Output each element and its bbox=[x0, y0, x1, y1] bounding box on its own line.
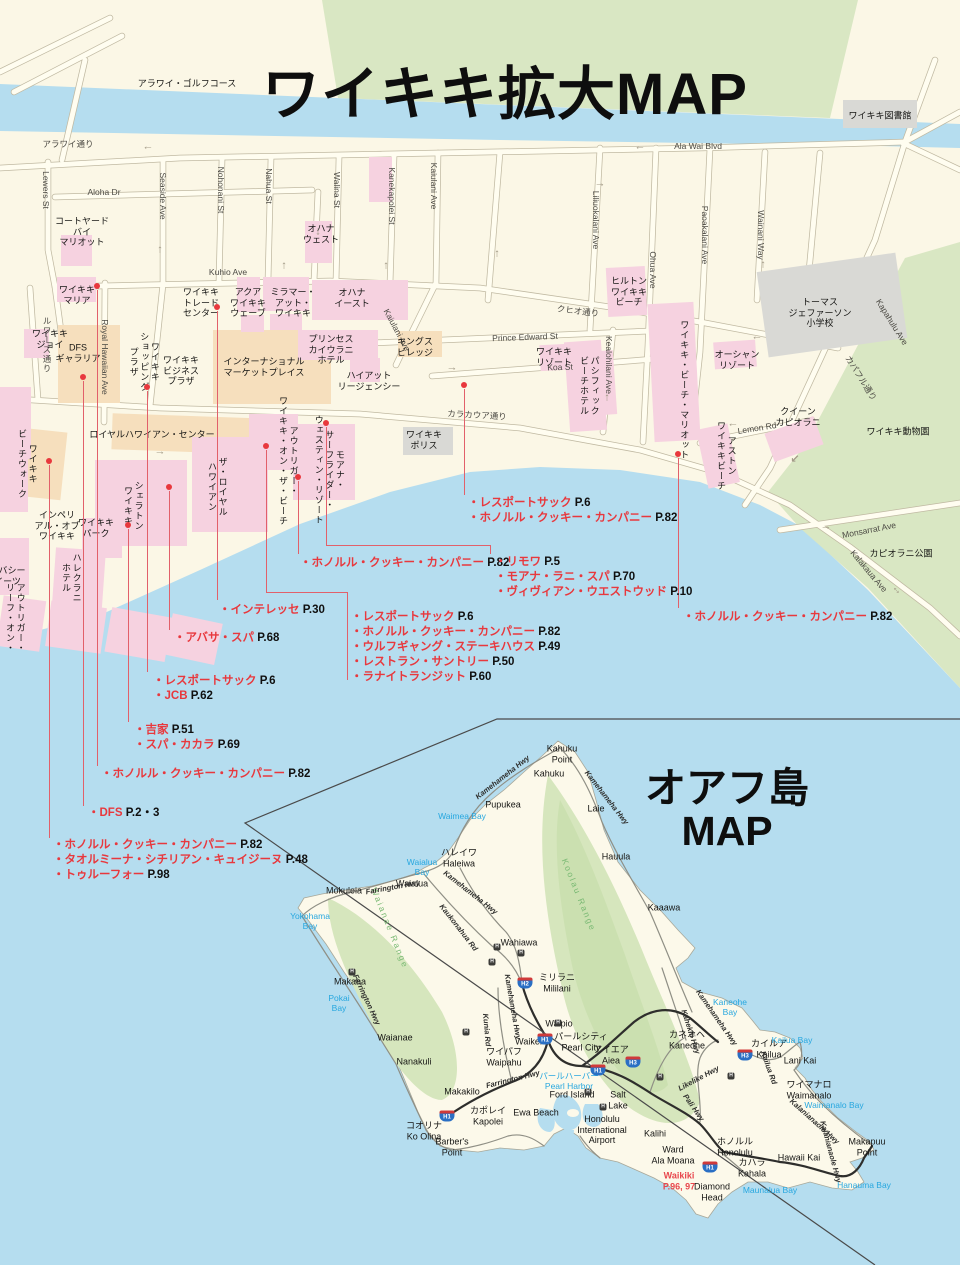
oahu-title-line1: オアフ島 bbox=[645, 767, 809, 810]
library-building bbox=[843, 100, 917, 128]
oahu-title-line2: MAP bbox=[645, 810, 809, 853]
police-building bbox=[403, 427, 453, 455]
basemap bbox=[0, 0, 960, 1265]
oahu-map-title: オアフ島 MAP bbox=[645, 767, 809, 853]
waikiki-map-title: ワイキキ拡大MAP bbox=[262, 47, 748, 131]
ford-island bbox=[567, 1109, 579, 1117]
tourist-map-page: ワイキキ拡大MAP オアフ島 MAP アラワイ通りAla Wai BlvdAlo… bbox=[0, 0, 960, 1265]
